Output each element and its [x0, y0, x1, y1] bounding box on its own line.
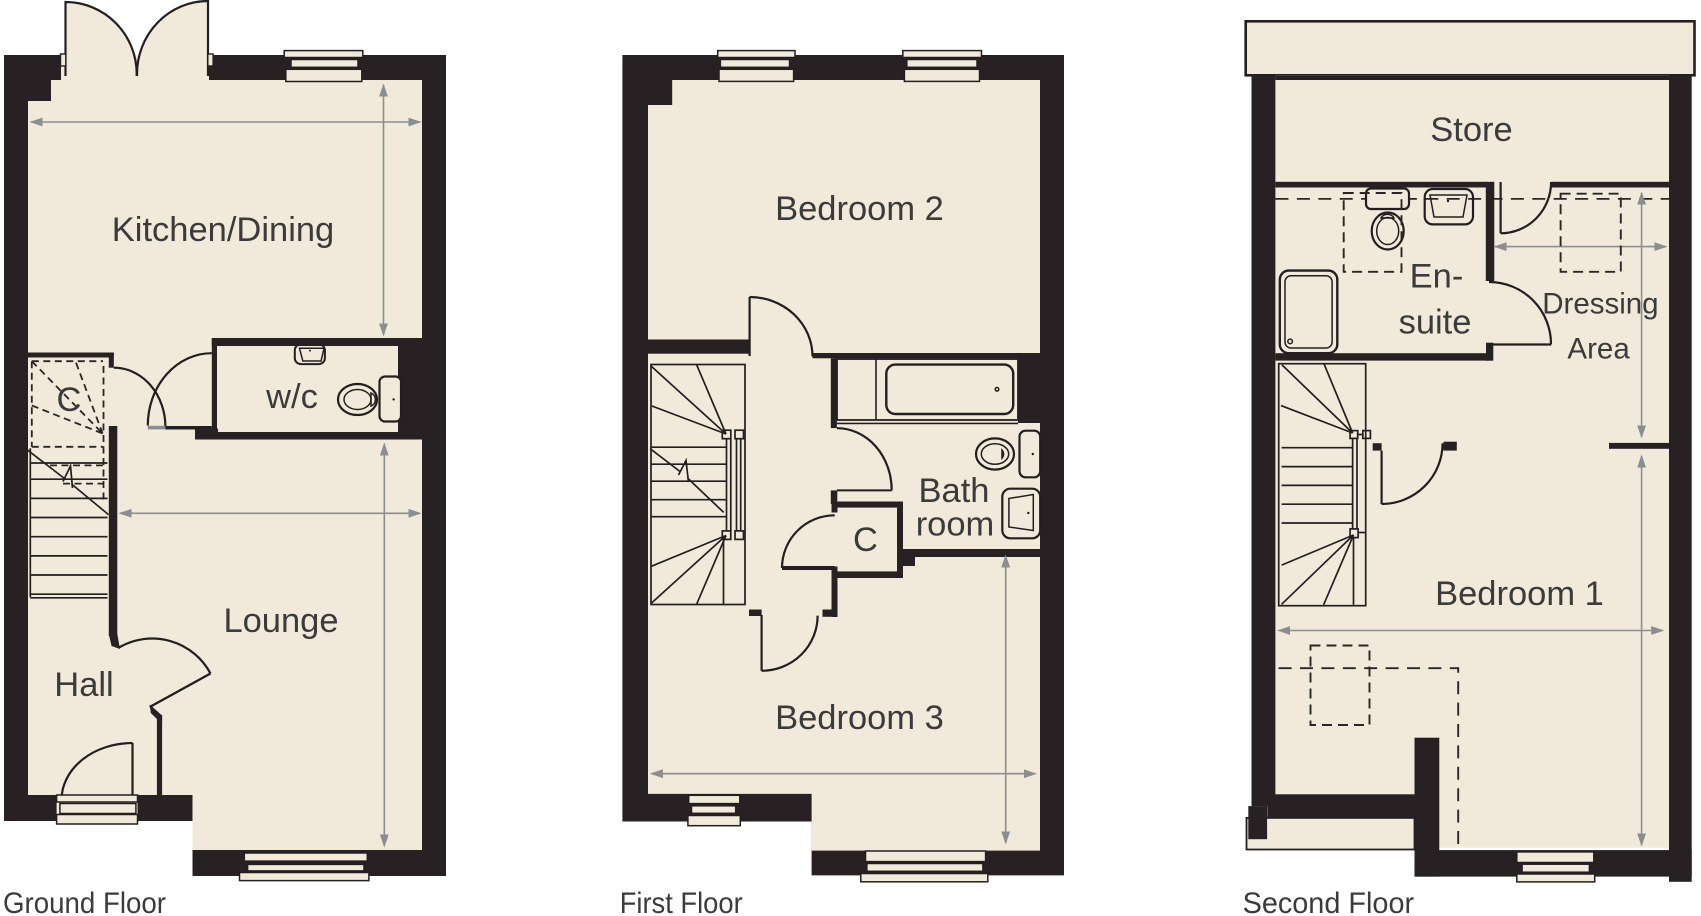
svg-text:Second Floor: Second Floor: [1243, 887, 1415, 916]
svg-text:C: C: [57, 381, 82, 419]
svg-text:room: room: [916, 506, 995, 544]
svg-text:C: C: [853, 521, 878, 559]
svg-text:Kitchen/Dining: Kitchen/Dining: [112, 211, 334, 249]
svg-text:Ground Floor: Ground Floor: [3, 887, 166, 916]
svg-text:Area: Area: [1567, 333, 1630, 366]
svg-text:Bedroom 2: Bedroom 2: [775, 190, 944, 228]
svg-text:Hall: Hall: [54, 666, 113, 704]
svg-text:En-: En-: [1410, 258, 1464, 296]
svg-text:Lounge: Lounge: [223, 602, 338, 640]
svg-text:suite: suite: [1399, 304, 1472, 342]
svg-text:Store: Store: [1430, 111, 1512, 149]
svg-text:w/c: w/c: [265, 378, 318, 416]
svg-text:Bedroom 3: Bedroom 3: [775, 699, 944, 737]
svg-text:Bath: Bath: [919, 472, 990, 510]
svg-text:Bedroom 1: Bedroom 1: [1435, 575, 1604, 613]
svg-text:First Floor: First Floor: [620, 887, 743, 916]
